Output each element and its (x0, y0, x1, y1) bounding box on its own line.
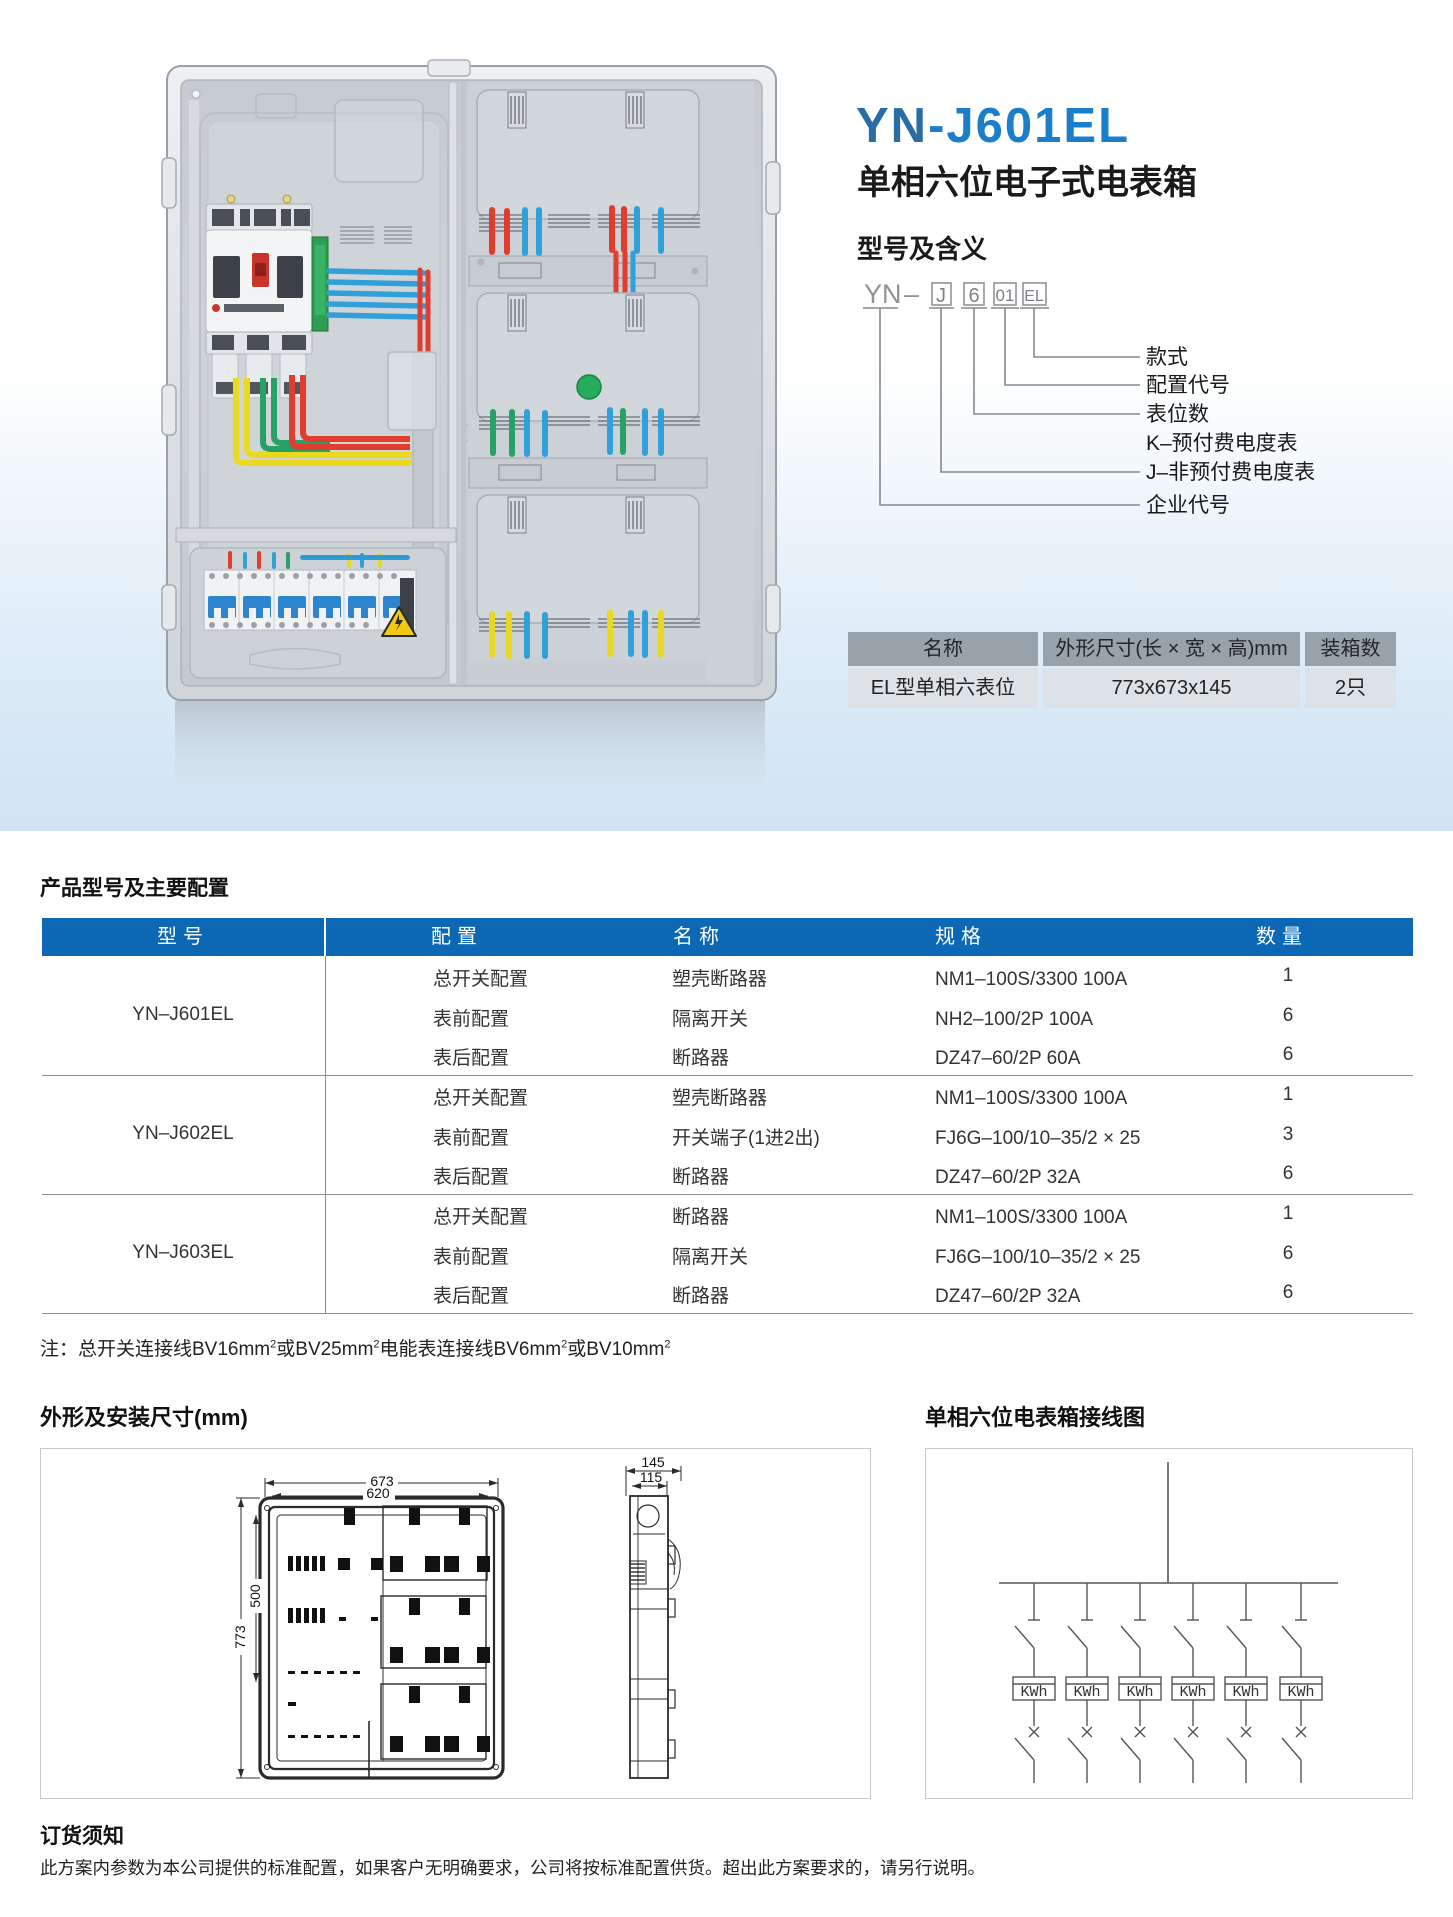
svg-text:145: 145 (641, 1454, 665, 1470)
svg-text:773: 773 (232, 1625, 248, 1649)
svg-text:KWh: KWh (1126, 1684, 1153, 1701)
svg-text:KWh: KWh (1287, 1684, 1314, 1701)
svg-text:115: 115 (640, 1469, 663, 1485)
svg-text:KWh: KWh (1232, 1684, 1259, 1701)
svg-text:KWh: KWh (1179, 1684, 1206, 1701)
svg-text:KWh: KWh (1020, 1684, 1047, 1701)
svg-text:500: 500 (247, 1584, 263, 1608)
svg-text:620: 620 (366, 1485, 390, 1501)
svg-text:KWh: KWh (1073, 1684, 1100, 1701)
